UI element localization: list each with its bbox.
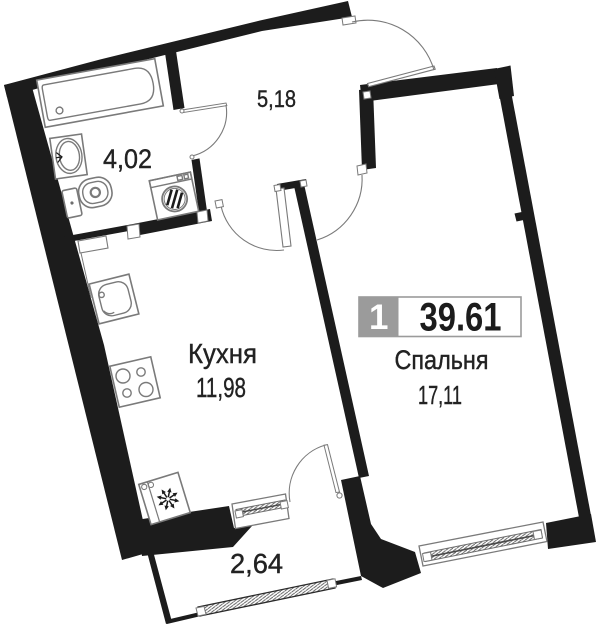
svg-text:1: 1 (369, 298, 388, 337)
svg-text:Спальня: Спальня (395, 345, 489, 375)
svg-text:4,02: 4,02 (103, 144, 152, 174)
svg-text:11,98: 11,98 (196, 372, 246, 403)
svg-text:Кухня: Кухня (188, 338, 257, 369)
svg-text:17,11: 17,11 (418, 380, 462, 410)
svg-text:5,18: 5,18 (257, 86, 296, 113)
svg-text:39.61: 39.61 (420, 296, 502, 340)
svg-text:2,64: 2,64 (230, 548, 283, 579)
